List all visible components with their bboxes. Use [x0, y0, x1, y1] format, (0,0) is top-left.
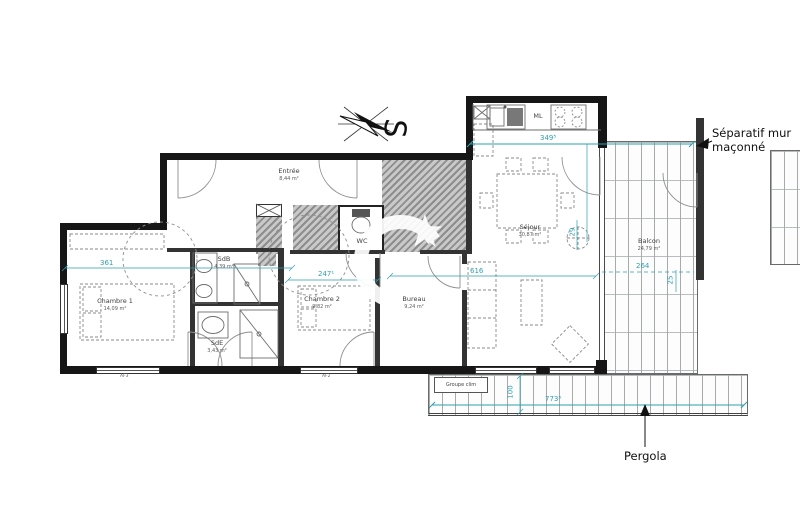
door-bureau — [428, 256, 460, 288]
door-separatif-side — [663, 173, 697, 207]
dining-table — [497, 174, 557, 228]
burner — [555, 107, 565, 117]
dim-pergola-width: 773⁵ — [545, 395, 561, 403]
dim-chambre1: 361 — [100, 259, 113, 267]
sink-basin — [490, 108, 504, 126]
annotation-arrows — [640, 138, 712, 447]
dim-line-sejour — [387, 273, 599, 279]
dim-balcon-side: 25 — [666, 276, 674, 285]
chair — [506, 158, 521, 171]
kitchen-ml-label: ML — [533, 113, 542, 121]
sde-shower-diagonal — [240, 310, 278, 358]
sdb-basin-2 — [196, 285, 212, 298]
door-balcony — [562, 157, 600, 195]
sde-counter — [198, 312, 228, 338]
dim-line-kitchen — [467, 141, 695, 147]
chair — [561, 193, 574, 208]
swing-circle-right — [269, 215, 349, 295]
groupe-clim-label: Groupe clim — [446, 382, 476, 388]
room-label-sdb: SdB 4,39 m² — [214, 256, 234, 270]
door-chambre2 — [340, 332, 374, 366]
burner — [555, 117, 565, 127]
fridge-cross — [474, 106, 490, 119]
furniture — [70, 107, 589, 362]
sink-drainer — [507, 108, 523, 126]
faucet — [504, 106, 507, 109]
dim-hall: 247¹ — [318, 270, 334, 278]
plan-overlay: S — [0, 0, 800, 522]
dim-kitchen: 349⁵ — [540, 134, 556, 142]
burner — [572, 107, 582, 117]
pillow — [301, 309, 316, 327]
dim-sejour: 616 — [470, 267, 483, 275]
room-label-bureau: Bureau 9,24 m² — [402, 296, 425, 310]
room-label-chambre1: Chambre 1 14,09 m² — [97, 298, 133, 312]
chair — [533, 158, 548, 171]
watermark-logo — [361, 214, 443, 302]
pillow — [83, 313, 101, 337]
door-corridor — [319, 160, 357, 198]
window-code-left: AF3 — [120, 374, 129, 379]
armchair — [552, 326, 589, 363]
dim-line-pergola-depth — [517, 373, 523, 415]
sdb-shower-diagonal — [234, 264, 260, 304]
compass: S — [338, 107, 413, 141]
door-entry — [178, 160, 216, 198]
separatif-annotation: Séparatif mur maçonné — [712, 126, 796, 155]
bed-chambre1 — [80, 284, 174, 340]
compass-south-label: S — [376, 117, 413, 140]
sofa-cushions — [468, 290, 496, 318]
floor-plan: S Entrée 8,44 m² Chambre 1 14,09 m² SdB … — [0, 0, 800, 522]
dim-line-pergola — [429, 402, 747, 408]
chair — [480, 193, 493, 208]
pergola-arrow-head — [640, 404, 650, 416]
room-label-balcon: Balcon 24,79 m² — [638, 238, 661, 252]
window-code-middle: AF2 — [322, 374, 331, 379]
room-label-wc: WC — [357, 238, 368, 246]
pergola-annotation: Pergola — [624, 449, 667, 463]
sdb-basin-1 — [196, 260, 212, 273]
burner — [572, 117, 582, 127]
cooktop — [551, 105, 586, 129]
room-label-chambre2: Chambre 2 9,82 m² — [304, 296, 340, 310]
dim-pergola-depth: 100 — [507, 385, 515, 398]
wc-tank — [352, 209, 370, 217]
groupe-clim-box: Groupe clim — [434, 377, 488, 393]
room-label-sejour: Séjour 30,87 m² — [519, 224, 542, 238]
wardrobe-chambre1 — [70, 234, 164, 249]
sde-basin — [202, 317, 224, 334]
closet-x — [256, 204, 282, 217]
separatif-arrow-head — [696, 138, 709, 149]
room-label-entree: Entrée 8,44 m² — [278, 168, 299, 182]
coffee-table — [521, 280, 542, 325]
dim-balcon: 264 — [636, 262, 649, 270]
dimension-lines — [62, 141, 747, 415]
dim-balcony-door: 29 — [568, 228, 576, 237]
room-label-sde: SdE 3,43 m² — [207, 340, 227, 354]
swing-circle-left — [123, 222, 197, 296]
